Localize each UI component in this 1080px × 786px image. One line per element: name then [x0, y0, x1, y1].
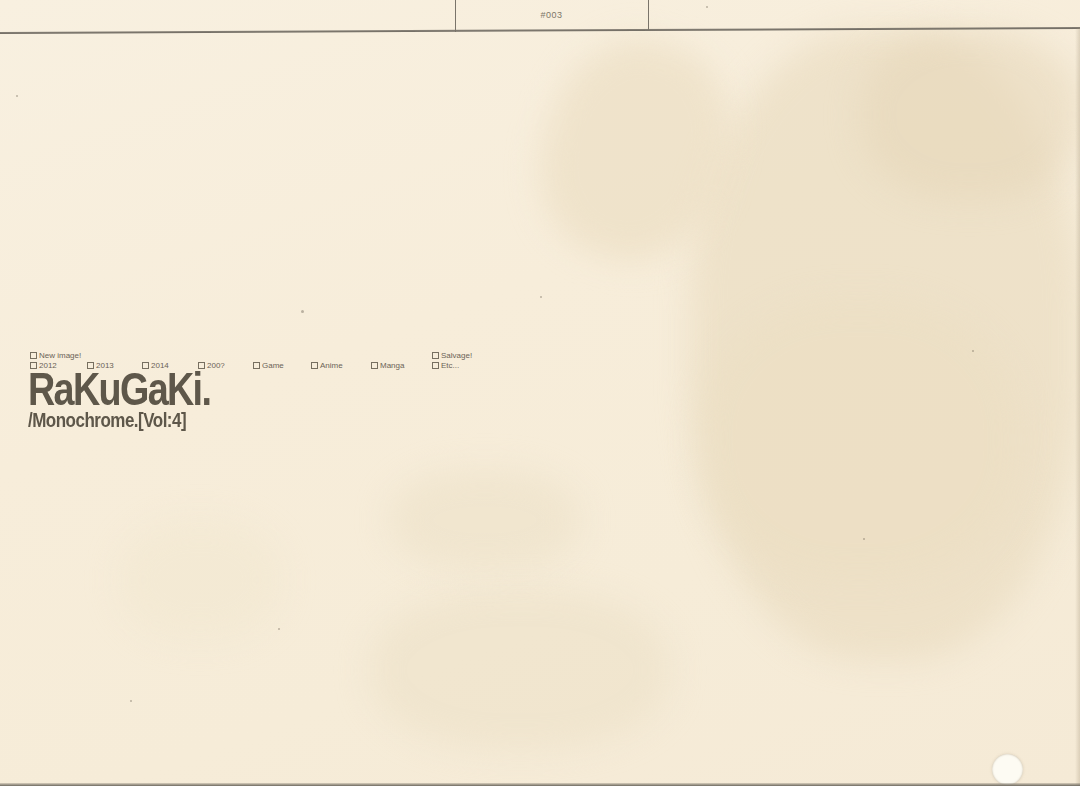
- checkbox-icon[interactable]: [432, 352, 439, 359]
- dust-speck: [301, 310, 304, 313]
- dust-speck: [706, 6, 708, 8]
- filter-new-image[interactable]: New image!: [30, 351, 81, 361]
- filter-etc[interactable]: Etc...: [432, 361, 459, 371]
- dust-speck: [540, 296, 542, 298]
- dust-speck: [863, 538, 865, 540]
- checkbox-icon[interactable]: [311, 362, 318, 369]
- filter-game[interactable]: Game: [253, 361, 284, 371]
- filter-manga[interactable]: Manga: [371, 361, 404, 371]
- filter-salvage[interactable]: Salvage!: [432, 351, 472, 361]
- dust-speck: [130, 700, 132, 702]
- ghost-blob: [370, 590, 670, 750]
- checkbox-icon[interactable]: [30, 352, 37, 359]
- checkbox-icon[interactable]: [371, 362, 378, 369]
- ghost-blob: [515, 18, 754, 283]
- dust-speck: [972, 350, 974, 352]
- punch-hole-artifact: [992, 754, 1023, 785]
- page-number: #003: [455, 10, 648, 30]
- filter-label: Etc...: [441, 361, 459, 370]
- scan-edge-right: [1075, 28, 1080, 786]
- scanned-page: #003 New image! Salvage! 2012 2013 2014 …: [0, 0, 1080, 786]
- page-subtitle: /Monochrome.[Vol:4]: [28, 409, 186, 431]
- ghost-blob: [860, 30, 1080, 200]
- page-title: RaKuGaKi.: [28, 367, 210, 411]
- ghost-blob: [390, 470, 580, 570]
- checkbox-icon[interactable]: [432, 362, 439, 369]
- filter-label: Game: [262, 361, 284, 370]
- filter-label: Salvage!: [441, 351, 472, 360]
- dust-speck: [278, 628, 280, 630]
- ghost-blob: [700, 300, 1020, 580]
- header-cell-divider-right: [648, 0, 649, 30]
- filter-label: Anime: [320, 361, 343, 370]
- filter-label: New image!: [39, 351, 81, 360]
- dust-speck: [16, 95, 18, 97]
- filter-label: Manga: [380, 361, 404, 370]
- checkbox-icon[interactable]: [253, 362, 260, 369]
- filter-anime[interactable]: Anime: [311, 361, 343, 371]
- ghost-blob: [120, 520, 280, 640]
- ghost-blob: [690, 30, 1080, 660]
